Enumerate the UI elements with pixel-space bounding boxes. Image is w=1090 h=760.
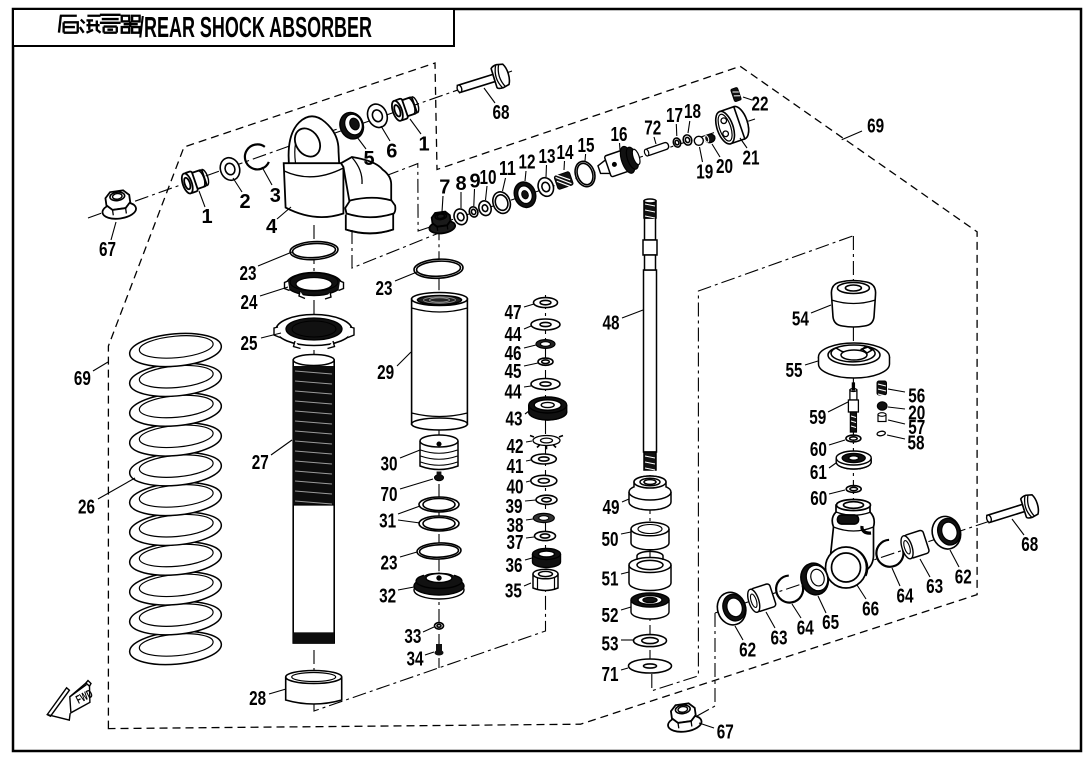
svg-text:12: 12 (519, 152, 536, 174)
svg-text:13: 13 (539, 146, 556, 168)
svg-text:4: 4 (266, 216, 278, 238)
svg-text:48: 48 (603, 313, 620, 335)
svg-text:45: 45 (505, 361, 522, 383)
svg-text:64: 64 (797, 618, 815, 640)
svg-text:5: 5 (363, 148, 374, 170)
svg-text:8: 8 (455, 173, 466, 195)
svg-text:53: 53 (602, 634, 619, 656)
svg-text:69: 69 (74, 368, 91, 390)
svg-text:11: 11 (499, 158, 516, 180)
svg-text:71: 71 (602, 664, 619, 686)
svg-text:23: 23 (376, 278, 393, 300)
svg-text:34: 34 (407, 648, 425, 670)
svg-text:14: 14 (557, 142, 575, 164)
svg-text:64: 64 (897, 586, 915, 608)
svg-text:50: 50 (602, 529, 619, 551)
svg-text:28: 28 (249, 688, 266, 710)
svg-text:32: 32 (379, 585, 396, 607)
svg-text:66: 66 (862, 599, 879, 621)
svg-text:52: 52 (602, 605, 619, 627)
svg-text:70: 70 (381, 484, 398, 506)
svg-text:19: 19 (696, 162, 713, 184)
svg-text:15: 15 (578, 135, 595, 157)
svg-text:33: 33 (404, 626, 421, 648)
svg-text:18: 18 (684, 101, 701, 123)
svg-text:65: 65 (822, 612, 839, 634)
svg-text:55: 55 (786, 360, 803, 382)
svg-text:69: 69 (867, 116, 884, 138)
svg-text:16: 16 (611, 124, 628, 146)
svg-text:47: 47 (505, 302, 522, 324)
svg-text:23: 23 (381, 553, 398, 575)
svg-text:3: 3 (270, 185, 281, 207)
svg-text:31: 31 (379, 511, 396, 533)
svg-text:62: 62 (955, 567, 972, 589)
svg-text:67: 67 (717, 722, 734, 744)
svg-text:25: 25 (241, 333, 258, 355)
svg-text:24: 24 (241, 292, 259, 314)
svg-text:21: 21 (743, 148, 760, 170)
svg-text:7: 7 (439, 177, 450, 199)
svg-text:20: 20 (716, 156, 733, 178)
svg-text:43: 43 (506, 409, 523, 431)
svg-text:22: 22 (752, 94, 769, 116)
svg-text:23: 23 (240, 263, 257, 285)
svg-text:49: 49 (603, 497, 620, 519)
svg-text:59: 59 (809, 407, 826, 429)
svg-text:36: 36 (506, 555, 523, 577)
svg-text:26: 26 (78, 497, 95, 519)
svg-text:54: 54 (792, 309, 810, 331)
svg-text:30: 30 (381, 453, 398, 475)
svg-text:35: 35 (505, 581, 522, 603)
svg-text:63: 63 (926, 576, 943, 598)
svg-text:42: 42 (507, 436, 524, 458)
svg-text:61: 61 (810, 462, 827, 484)
svg-text:6: 6 (386, 140, 397, 162)
svg-text:27: 27 (252, 452, 269, 474)
svg-text:68: 68 (493, 102, 510, 124)
svg-text:29: 29 (377, 362, 394, 384)
svg-text:1: 1 (418, 134, 429, 156)
svg-text:67: 67 (99, 239, 116, 261)
svg-text:60: 60 (810, 439, 827, 461)
svg-text:72: 72 (644, 118, 661, 140)
svg-text:63: 63 (771, 628, 788, 650)
svg-text:41: 41 (507, 456, 524, 478)
svg-text:17: 17 (666, 105, 683, 127)
svg-text:58: 58 (908, 433, 925, 455)
svg-text:51: 51 (602, 569, 619, 591)
svg-text:60: 60 (810, 488, 827, 510)
svg-text:10: 10 (480, 167, 497, 189)
svg-text:1: 1 (201, 206, 212, 228)
svg-text:2: 2 (239, 191, 250, 213)
svg-text:/REAR SHOCK ABSORBER: /REAR SHOCK ABSORBER (139, 12, 372, 44)
svg-text:44: 44 (505, 382, 523, 404)
svg-text:68: 68 (1021, 534, 1038, 556)
svg-text:37: 37 (507, 532, 524, 554)
svg-text:62: 62 (739, 640, 756, 662)
